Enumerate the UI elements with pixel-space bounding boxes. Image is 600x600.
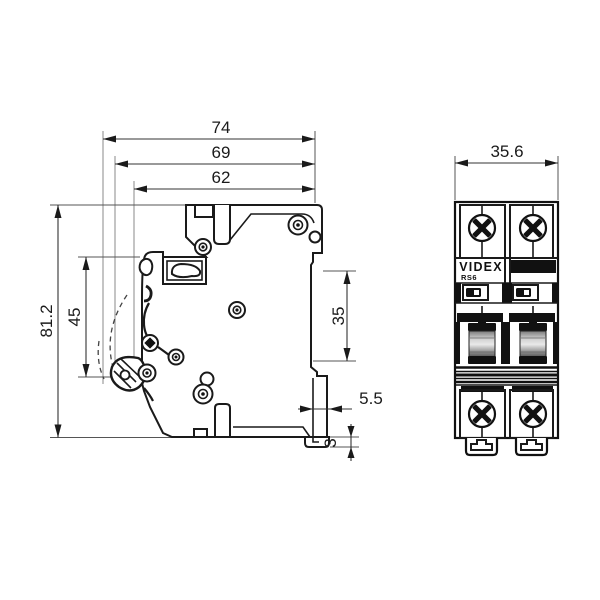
front-bottom-clamps (466, 438, 547, 455)
dim-label-45: 45 (65, 308, 84, 327)
toggle-lever[interactable] (468, 323, 496, 364)
dim-label-74: 74 (212, 118, 231, 137)
phillips-screw-icon (520, 215, 546, 241)
blob-pivot (121, 371, 130, 380)
dim-label-69: 69 (212, 143, 231, 162)
dim-label-5-5: 5.5 (359, 389, 383, 408)
side-view: 74 69 62 81.2 (37, 118, 383, 461)
phillips-screw-icon (469, 215, 495, 241)
brand-logo: VIDEX (459, 260, 503, 274)
pivot-bar (457, 313, 503, 322)
label-black-bar (511, 260, 556, 273)
dim-label-81-2: 81.2 (37, 304, 56, 337)
phillips-screw-icon (520, 401, 546, 427)
dim-35-6: 35.6 (455, 142, 558, 200)
teardrop-hole (140, 259, 153, 275)
dim-label-62: 62 (212, 168, 231, 187)
pivot-bar (509, 313, 555, 322)
screw-icon (169, 350, 184, 365)
toggle-lever[interactable] (519, 323, 547, 364)
screw-icon (289, 216, 308, 235)
dim-45: 45 (65, 257, 90, 377)
dim-74: 74 (103, 118, 315, 143)
side-body-outline (142, 205, 327, 437)
top-slot (214, 205, 230, 244)
front-view: 35.6 VIDEX RS6 (455, 142, 558, 455)
dim-label-35: 35 (329, 307, 348, 326)
bottom-tab (194, 429, 207, 437)
model-label: RS6 (461, 273, 477, 282)
dim-label-35-6: 35.6 (490, 142, 523, 161)
dim-81-2: 81.2 (37, 205, 62, 438)
phillips-screw-icon (469, 401, 495, 427)
breaker-dimension-drawing: 74 69 62 81.2 (0, 0, 600, 600)
screw-icon (229, 302, 245, 318)
top-tab (195, 205, 213, 217)
rear-hole (310, 232, 321, 243)
dim-69: 69 (115, 143, 315, 168)
square-screw-icon (142, 335, 158, 351)
dim-35: 35 (329, 271, 351, 361)
technical-drawing: 74 69 62 81.2 (0, 0, 600, 600)
screw-icon (195, 239, 211, 255)
screw-icon (194, 385, 213, 404)
toggle-lever-side (172, 264, 200, 277)
dim-label-3: 3 (321, 438, 340, 447)
screw-icon (139, 365, 156, 382)
dim-62: 62 (134, 168, 315, 193)
